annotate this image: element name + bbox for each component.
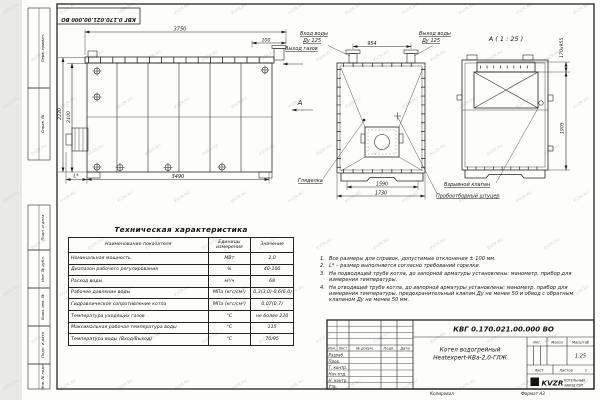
spec-cell-name: Номинальная мощность: [69, 253, 209, 265]
label-water-outlet: Выход воды: [419, 31, 451, 37]
burner-plate: [361, 127, 403, 157]
dim-2230: 2230: [57, 108, 63, 120]
title-block: Изм. Лист № докум. Подп. Дата Разраб. Пр…: [327, 320, 594, 396]
note-number: 1.: [320, 256, 329, 262]
logo-text: KVZR: [542, 379, 564, 388]
note-item: 3.На подводящей трубе котла, до запорной…: [320, 271, 588, 284]
spec-cell-name: Расход воды: [69, 276, 209, 288]
spec-cell-name: Диапазон рабочего регулирования: [69, 264, 209, 276]
col-data: Дата: [399, 347, 409, 351]
label-sampling-fitting: Пробоотборный штуцер: [436, 194, 500, 200]
spec-table-title: Техническая характеристика: [68, 225, 294, 234]
margin-boxes: Перв. примен. Справ. № Подп. и дата Инв.…: [28, 8, 50, 390]
spec-header-unit: Единицы измерения: [208, 238, 251, 253]
spec-cell-unit: м³/ч: [208, 276, 251, 288]
doc-number-top: КВГ 0.170.021.00.000 ВО: [61, 16, 136, 22]
spec-row: Гидравлическое сопротивление котлаМПа (к…: [69, 299, 294, 311]
factory-logo: KVZR КОТЕЛЬНЫЙ ЗАВОД РЭП: [531, 378, 586, 388]
note-item: 1.Все размеры для справок, допустимые от…: [320, 256, 588, 262]
spec-table: Наименование показателя Единицы измерени…: [68, 237, 294, 346]
col-podp: Подп.: [384, 347, 395, 351]
spec-row: Расход водым³/ч68: [69, 276, 294, 288]
label-gas-outlet: Выход газов: [285, 46, 318, 52]
logo-caption-2: ЗАВОД РЭП: [564, 383, 584, 387]
dim-1905: 1905: [560, 122, 566, 134]
margin-box-label: Справ. №: [40, 115, 45, 134]
spec-cell-unit: °С: [208, 322, 251, 334]
dim-1590: 1590: [376, 181, 388, 187]
note-number: 3.: [320, 271, 329, 284]
spec-header-row: Наименование показателя Единицы измерени…: [69, 238, 294, 253]
margin-box-label: Инв. № подл.: [40, 363, 45, 389]
scale-value: 1:25: [575, 354, 586, 360]
scale-label: Масштаб: [572, 341, 590, 345]
spec-table-block: Техническая характеристика Наименование …: [68, 225, 294, 346]
flue-stub-flange: [272, 46, 286, 49]
spec-cell-value: не более 220: [251, 310, 294, 322]
spec-cell-value: 115: [251, 322, 294, 334]
dim-2100: 2100: [66, 111, 72, 123]
spec-row: Максимальная рабочая температура воды°С1…: [69, 322, 294, 334]
margin-box-label: Перв. примен.: [40, 34, 45, 63]
spec-header-value: Значение: [251, 238, 294, 253]
role-prov: Пров.: [329, 359, 341, 364]
front-view: 954 1590 1730 Вход воды Ду 125 Выход вод…: [283, 31, 451, 200]
peephole-mark: [363, 119, 366, 122]
scanned-drawing-page: { "watermark": {"text": "KVZR.RU"}, "col…: [0, 0, 600, 400]
role-nkontr: Н. контр.: [329, 378, 348, 383]
copied-label: Копировал: [430, 391, 454, 396]
mass-label: Масса: [551, 341, 562, 345]
col-doc: № докум.: [355, 347, 374, 351]
spec-cell-name: Рабочее давление воды: [69, 287, 209, 299]
braced-panel: [474, 72, 538, 108]
sheet-label: Лист: [533, 369, 544, 373]
side-view: 3750 100 2230 2100 3490 L*: [57, 27, 286, 184]
dim-954: 954: [367, 41, 376, 47]
view-letter: А: [297, 99, 303, 107]
spec-cell-value: 40-100: [251, 264, 294, 276]
rear-view-title: А ( 1 : 25 ): [488, 35, 523, 43]
col-list: Лист: [338, 347, 347, 351]
spec-cell-unit: °С: [208, 310, 251, 322]
dim-170x955: 170х955: [559, 38, 565, 58]
spec-row: Температура воды (Вход/Выход)°С70/95: [69, 334, 294, 346]
spec-row: Температура уходящих газов°Сне более 220: [69, 310, 294, 322]
col-izm: Изм.: [328, 347, 336, 351]
note-text: Все размеры для справок, допустимые откл…: [329, 256, 588, 262]
logo-caption-1: КОТЕЛЬНЫЙ: [564, 378, 585, 383]
sampling-fitting-mark: [394, 113, 401, 120]
spec-cell-name: Максимальная рабочая температура воды: [69, 322, 209, 334]
explosion-valve-mark: [539, 101, 543, 105]
sheets-value: 1: [585, 368, 587, 373]
doc-number-top-box: КВГ 0.170.021.00.000 ВО: [57, 8, 140, 24]
note-text: На подводящей трубе котла, до запорной а…: [329, 271, 588, 284]
spec-cell-name: Гидравлическое сопротивление котла: [69, 299, 209, 311]
burner-mount-side: [66, 128, 88, 151]
product-name-line2: Heatexpert-КВа-2,0-ГЛЖ: [433, 356, 507, 362]
margin-box-label: Подп. и дата: [40, 214, 45, 241]
spec-cell-name: Температура воды (Вход/Выход): [69, 334, 209, 346]
role-razrab: Разраб.: [329, 353, 345, 358]
note-number: 4.: [320, 285, 329, 304]
spec-header-name: Наименование показателя: [69, 238, 209, 253]
note-item: 4.На отводящей трубе котла, до запорной …: [320, 285, 588, 304]
spec-cell-name: Температура уходящих газов: [69, 310, 209, 322]
spec-cell-value: 0,3(3,0)-0,6(6,0): [251, 287, 294, 299]
product-name-line1: Котел водогрейный: [440, 348, 501, 354]
note-number: 2.: [320, 263, 329, 269]
spec-cell-unit: МВт: [208, 253, 251, 265]
dim-3490: 3490: [172, 174, 185, 180]
spec-cell-unit: МПа (кгс/см²): [208, 299, 251, 311]
sheets-label: Листов: [558, 369, 572, 373]
dim-1730: 1730: [375, 190, 387, 196]
spec-cell-unit: МПа (кгс/см²): [208, 287, 251, 299]
water-outlet-nozzle: [404, 50, 418, 63]
margin-box-label: Инв. № дубл.: [40, 256, 45, 282]
format-label: Формат А3: [521, 391, 545, 396]
dim-l-star: L*: [73, 174, 79, 180]
spec-row: Номинальная мощностьМВт2,0: [69, 253, 294, 265]
note-text: L* – размер выполняется согласно требова…: [329, 263, 588, 269]
gas-outlet-duct: [477, 62, 535, 72]
spec-cell-unit: °С: [208, 334, 251, 346]
role-nachotd: Нач.отд.: [329, 372, 347, 377]
notes-block: 1.Все размеры для справок, допустимые от…: [320, 256, 588, 305]
role-utv: Утв.: [329, 384, 337, 389]
dim-100: 100: [262, 38, 271, 44]
margin-box-label: Взам. инв. №: [40, 294, 45, 320]
spec-row: Диапазон рабочего регулирования%40-100: [69, 264, 294, 276]
margin-box-label: Подп. и дата: [40, 331, 45, 358]
note-text: На отводящей трубе котла, до запорной ар…: [329, 285, 588, 304]
label-peephole: Гляделка: [298, 178, 323, 184]
label-water-inlet-dn: Ду 125: [302, 38, 321, 44]
spec-cell-unit: %: [208, 264, 251, 276]
spec-cell-value: 68: [251, 276, 294, 288]
doc-number: КВГ 0.170.021.00.000 ВО: [453, 326, 554, 334]
dim-3750: 3750: [174, 27, 187, 33]
spec-cell-value: 2,0: [251, 253, 294, 265]
role-tkontr: Т. контр.: [329, 365, 348, 370]
spec-row: Рабочее давление водыМПа (кгс/см²)0,3(3,…: [69, 287, 294, 299]
note-item: 2.L* – размер выполняется согласно требо…: [320, 263, 588, 269]
label-water-inlet: Вход воды: [300, 31, 328, 37]
water-inlet-nozzle: [346, 50, 360, 63]
rear-view: А ( 1 : 25 ) 170х955 1905 Взрывной клапа…: [398, 35, 570, 200]
logo-mark-icon: [531, 378, 540, 387]
spec-cell-value: 70/95: [251, 334, 294, 346]
spec-cell-value: 0,07(0,7): [251, 299, 294, 311]
label-water-outlet-dn: Ду 125: [421, 38, 440, 44]
lit-label: Лит.: [532, 341, 541, 345]
label-explosion-valve: Взрывной клапан: [444, 182, 491, 188]
flue-stub: [274, 49, 284, 61]
